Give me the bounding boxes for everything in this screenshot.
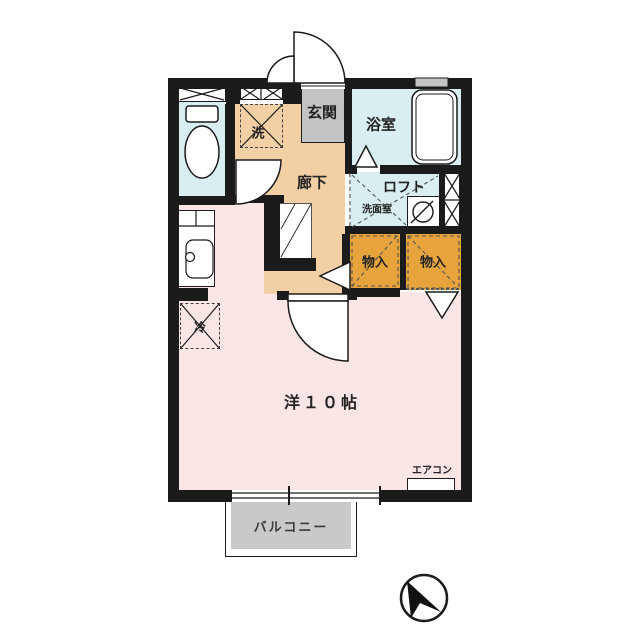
washbasin-box xyxy=(407,196,440,228)
wall-entrance-bath xyxy=(345,78,352,168)
floor-plan: 玄関 浴室 廊下 ロフト 洗面室 洗 物入 物入 冷 洋１０帖 エアコン バルコ… xyxy=(0,0,640,640)
washer-label: 洗 xyxy=(251,123,264,142)
kitchen-counter xyxy=(178,210,215,287)
wall-toilet-bottom xyxy=(168,196,235,205)
wall-hall-horiz xyxy=(264,258,316,271)
wall-toilet-right xyxy=(225,104,235,204)
wall-stub-a xyxy=(226,78,240,104)
aircon-label: エアコン xyxy=(412,462,452,477)
wall-ladder-div xyxy=(439,172,445,230)
window-opening xyxy=(232,490,381,502)
wall-right xyxy=(461,78,472,502)
bathroom-label: 浴室 xyxy=(366,114,396,135)
washroom-label: 洗面室 xyxy=(362,201,392,216)
wall-under-toilet-door xyxy=(235,195,284,203)
entrance-opening xyxy=(294,78,345,89)
step-box xyxy=(280,203,312,258)
fridge-label: 冷 xyxy=(194,319,206,336)
wall-door-stub-right xyxy=(345,289,357,300)
main-room-label: 洋１０帖 xyxy=(284,389,360,413)
north-arrow-icon xyxy=(401,575,447,621)
loft-label: ロフト xyxy=(383,177,425,197)
toilet-room-area xyxy=(178,89,225,197)
wall-stub-b xyxy=(283,78,301,104)
wall-storage-top xyxy=(345,226,462,234)
wall-bath-bottom-r xyxy=(380,165,462,174)
entrance-door-main-arc xyxy=(294,32,345,83)
storage-left-label: 物入 xyxy=(362,252,388,271)
wall-bath-bottom-l xyxy=(345,165,357,174)
wall-kitchen-bar xyxy=(178,288,208,301)
storage-right-label: 物入 xyxy=(420,252,446,271)
hallway-label: 廊下 xyxy=(297,172,327,193)
wall-storage-div xyxy=(400,234,406,290)
balcony-label: バルコニー xyxy=(254,517,329,536)
loft-ladder xyxy=(443,172,461,228)
wall-door-stub-left xyxy=(277,291,289,300)
entrance-label: 玄関 xyxy=(307,102,337,123)
